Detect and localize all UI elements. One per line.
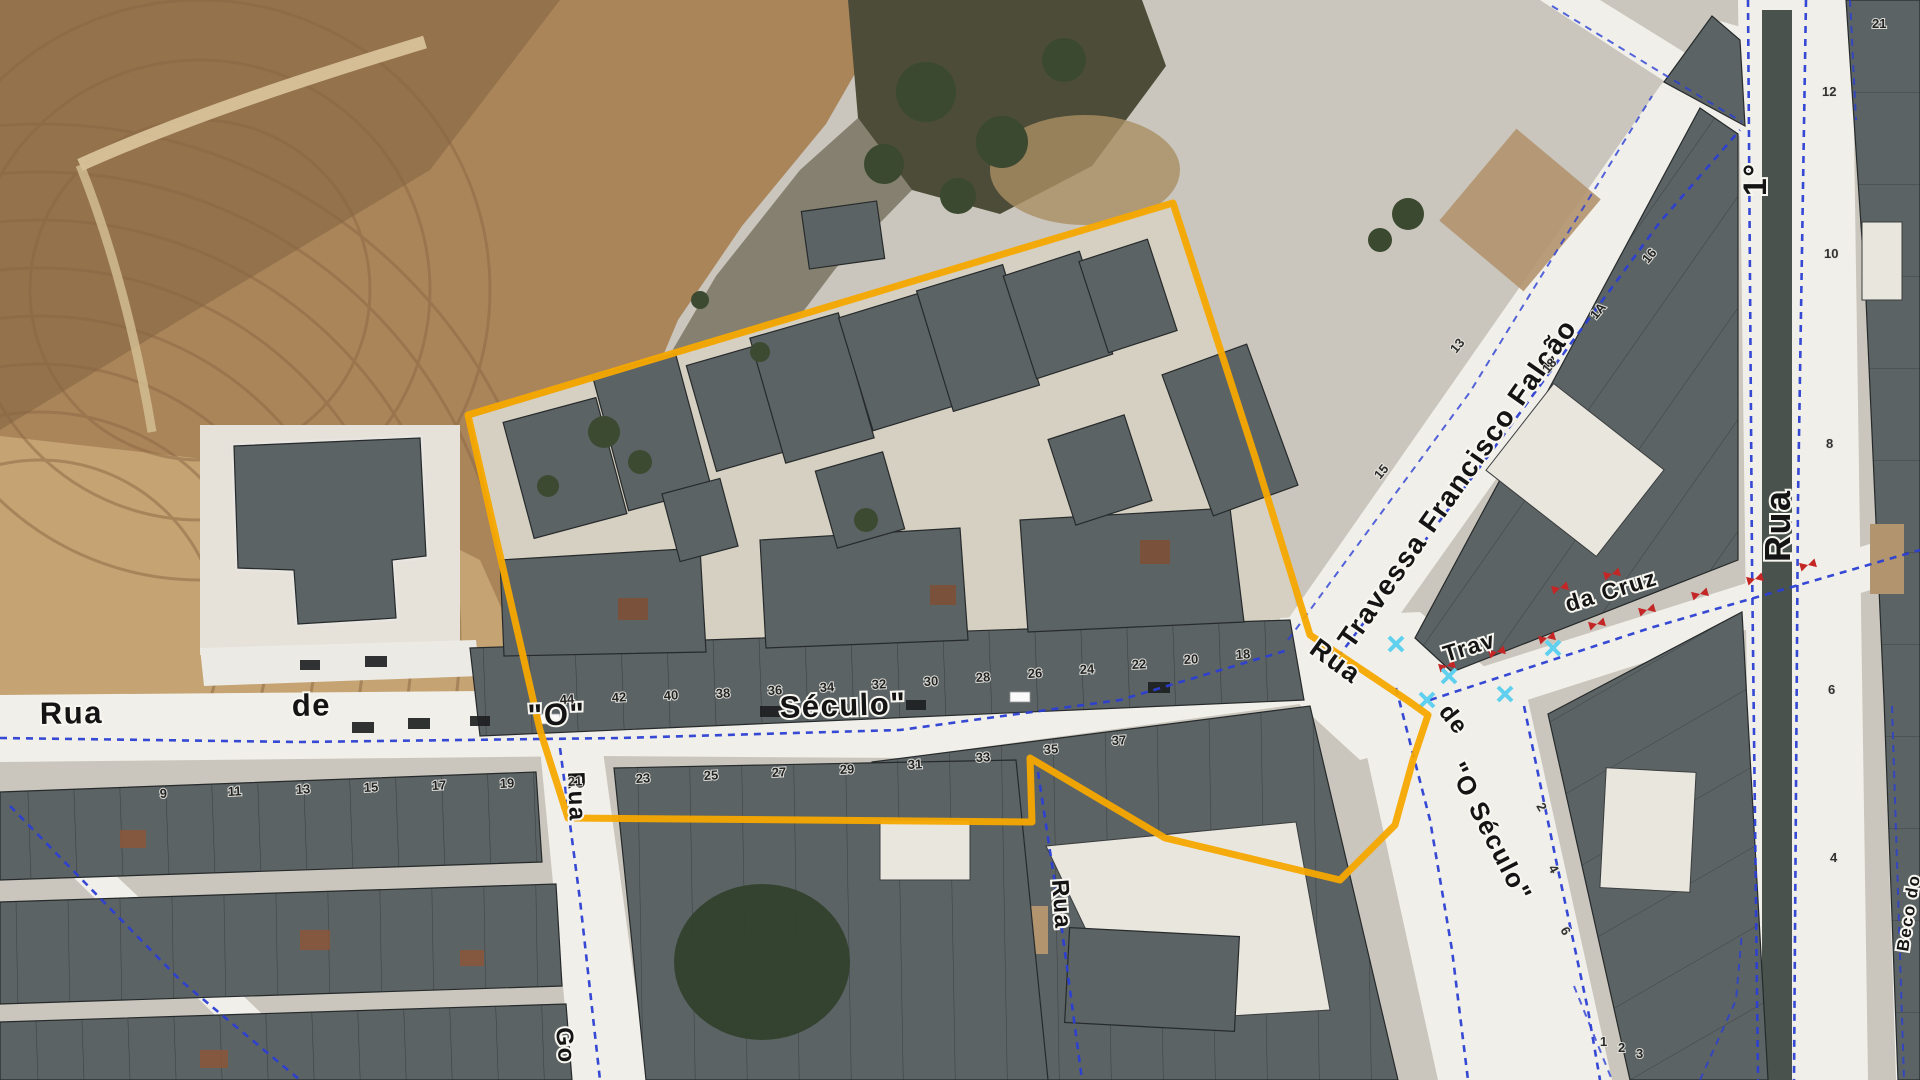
house-number: 24	[1079, 661, 1095, 677]
rua-de-o-seculo-label-seculo: Século"	[779, 686, 907, 725]
house-number: 17	[431, 777, 446, 793]
house-number: 20	[1183, 651, 1198, 667]
house-number: 27	[771, 764, 786, 780]
house-number: 26	[1027, 665, 1042, 681]
house-number: 40	[663, 687, 678, 703]
rua-right-label: Rua	[1757, 489, 1798, 562]
house-number: 25	[703, 767, 718, 783]
house-number: 22	[1131, 656, 1146, 672]
house-number: 10	[1824, 246, 1838, 261]
house-number: 15	[363, 779, 378, 795]
house-number: 8	[1826, 436, 1833, 451]
house-number: 42	[611, 689, 626, 705]
rua-mid-vertical-label: Rua	[1046, 879, 1076, 931]
house-number: 3	[1636, 1046, 1643, 1061]
house-number: 30	[923, 673, 938, 689]
rua-de-o-seculo-label-o: "O"	[527, 696, 586, 733]
aerial-map-view[interactable]: Ruade"O"Século"Travessa Francisco Falcão…	[0, 0, 1920, 1080]
house-number: 38	[715, 685, 730, 701]
house-number: 13	[295, 781, 310, 797]
house-number: 35	[1043, 741, 1058, 757]
house-number: 18	[1235, 646, 1250, 662]
house-number: 19	[499, 775, 514, 791]
house-number: 33	[975, 749, 990, 765]
house-number: 37	[1111, 732, 1126, 748]
house-number: 12	[1822, 84, 1836, 99]
house-number: 44	[559, 691, 575, 707]
house-number: 31	[907, 756, 922, 772]
house-number: 32	[871, 676, 886, 692]
rua-de-o-seculo-label-de: de	[292, 687, 332, 723]
go-street-label: Go	[550, 1026, 580, 1065]
house-number: 2	[1618, 1040, 1625, 1055]
numero-1-label: 1°	[1737, 162, 1773, 196]
house-number: 21	[567, 773, 582, 789]
house-number: 4	[1830, 850, 1838, 865]
rua-de-o-seculo-label-rua: Rua	[40, 695, 104, 731]
house-number: 28	[975, 669, 990, 685]
house-number: 23	[635, 770, 650, 786]
house-number: 6	[1828, 682, 1835, 697]
map-canvas[interactable]: Ruade"O"Século"Travessa Francisco Falcão…	[0, 0, 1920, 1080]
field-edge-building	[801, 201, 884, 269]
house-number: 34	[819, 679, 835, 695]
house-number: 9	[159, 786, 167, 801]
house-number: 36	[767, 682, 782, 698]
tree-mass	[674, 884, 850, 1040]
house-number: 29	[839, 761, 854, 777]
house-number: 11	[227, 783, 242, 799]
house-number: 21	[1872, 16, 1886, 31]
house-number: 1	[1600, 1034, 1607, 1049]
